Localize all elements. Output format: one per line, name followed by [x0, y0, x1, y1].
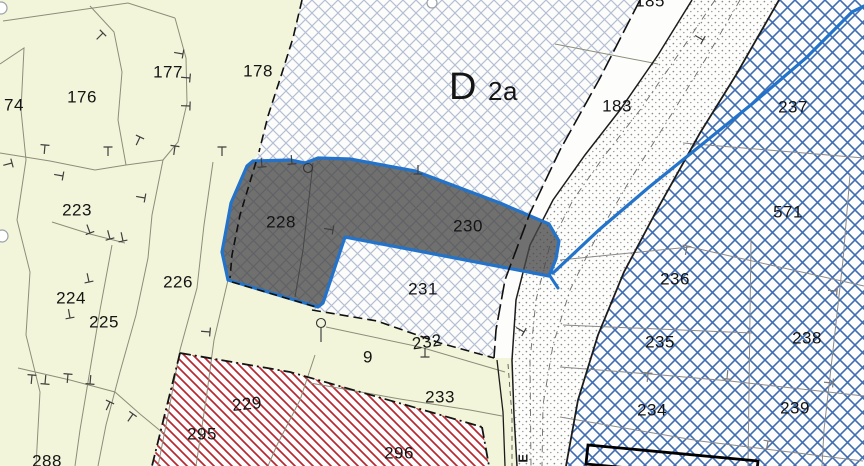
parcel-label-232: 232 — [411, 332, 443, 353]
parcel-label-235: 235 — [645, 334, 675, 351]
parcel-label-239: 239 — [780, 400, 810, 417]
parcel-label-185: 185 — [635, 0, 665, 10]
parcel-label-571: 571 — [773, 204, 803, 221]
parcel-label-228: 228 — [266, 214, 296, 231]
parcel-label-230: 230 — [453, 218, 483, 235]
parcel-label-225: 225 — [89, 314, 119, 331]
parcel-label-178: 178 — [243, 63, 273, 80]
street-label-fragment: E — [517, 453, 530, 462]
parcel-label-224: 224 — [56, 290, 86, 307]
parcel-label-237: 237 — [778, 99, 808, 116]
parcel-label-296: 296 — [384, 445, 414, 462]
parcel-label-9: 9 — [363, 349, 373, 366]
parcel-label-236: 236 — [660, 271, 690, 288]
parcel-label-234: 234 — [637, 402, 667, 419]
parcel-label-231: 231 — [408, 281, 438, 298]
parcel-label-238: 238 — [792, 330, 822, 347]
zone-label-sub: 2a — [488, 78, 518, 104]
cadastral-map: 74 176 177 178 185 183 223 224 225 226 2… — [0, 0, 864, 466]
parcel-label-229: 229 — [231, 394, 262, 414]
survey-circle — [0, 230, 8, 242]
parcel-label-288: 288 — [32, 453, 62, 466]
parcel-label-176: 176 — [67, 89, 97, 106]
parcel-label-233: 233 — [425, 389, 455, 406]
survey-circle — [0, 2, 7, 14]
parcel-label-223: 223 — [62, 202, 92, 219]
parcel-label-183: 183 — [602, 98, 632, 115]
parcel-label-226: 226 — [163, 274, 193, 291]
zone-label-main: D — [449, 68, 477, 106]
parcel-label-295: 295 — [187, 426, 217, 443]
parcel-label-177: 177 — [153, 64, 183, 81]
parcel-label-74: 74 — [4, 97, 24, 114]
survey-circle — [427, 0, 437, 8]
